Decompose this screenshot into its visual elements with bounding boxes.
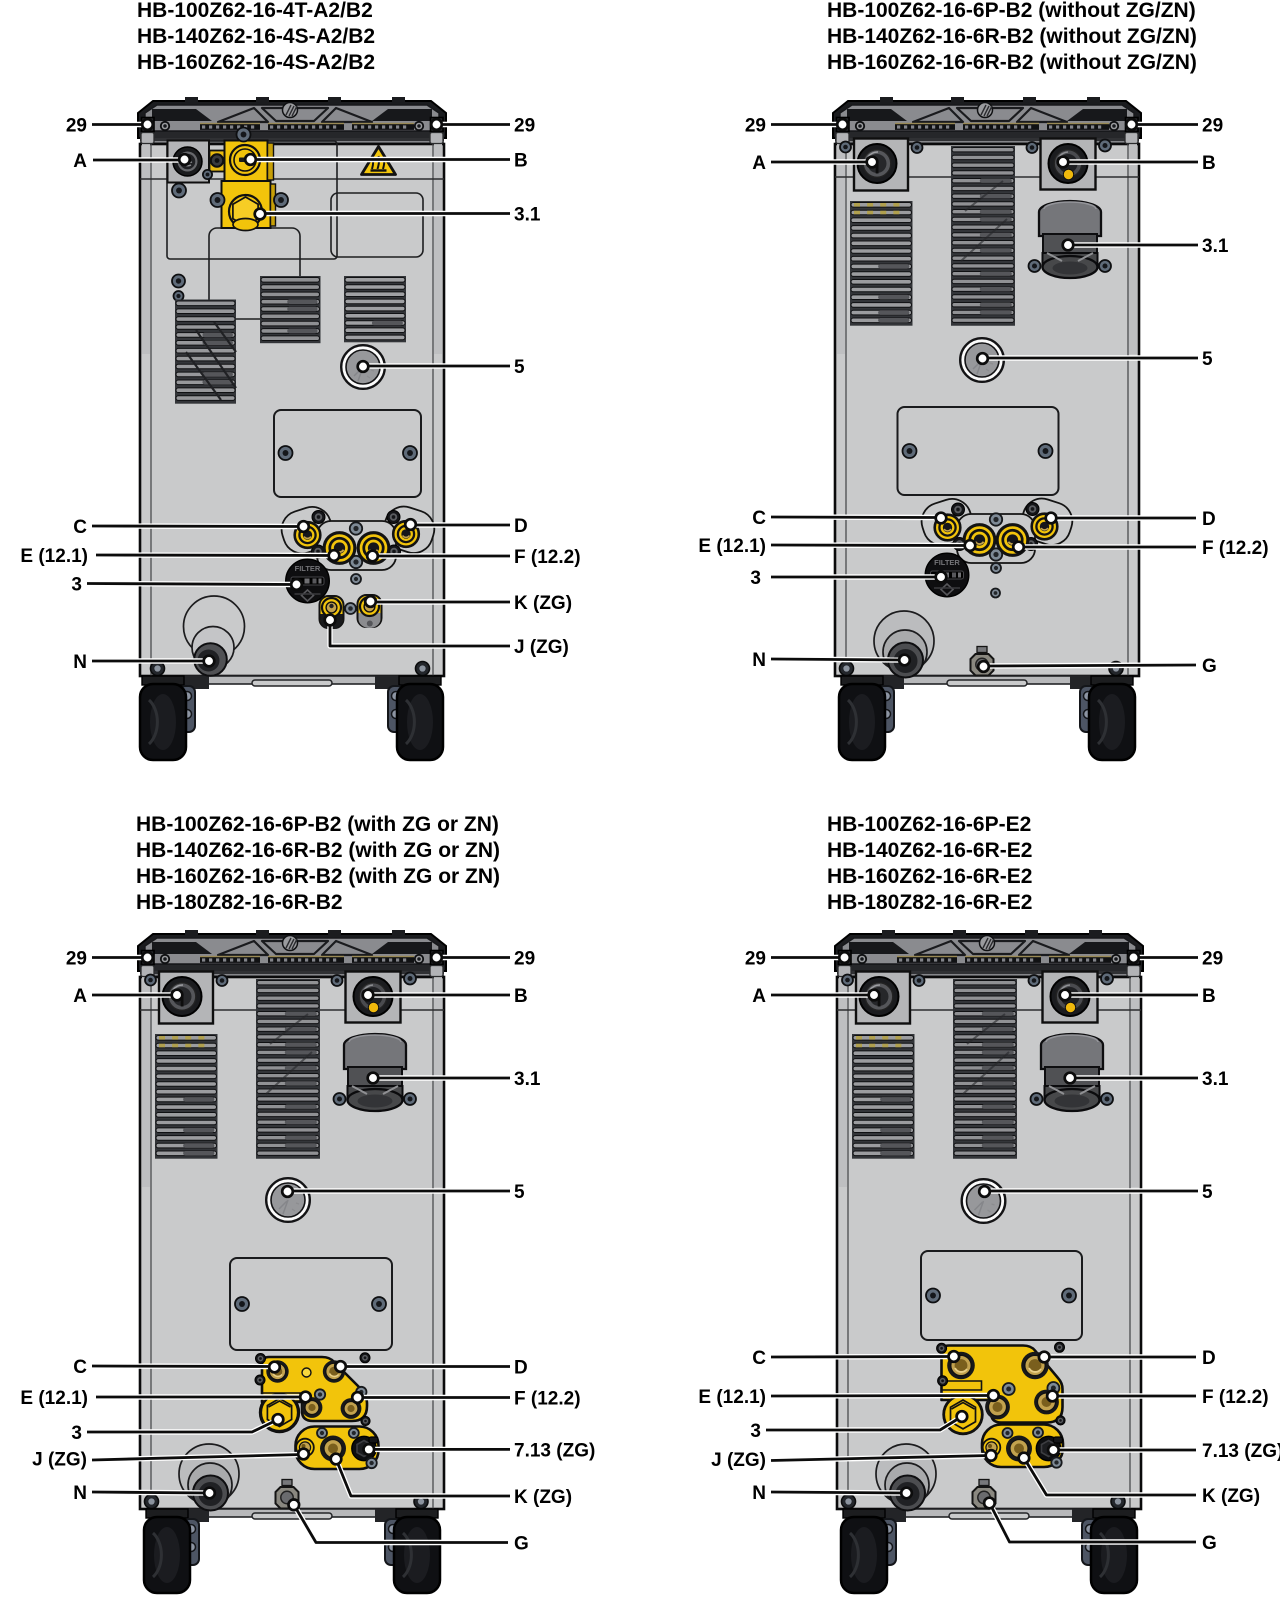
svg-text:29: 29: [514, 116, 535, 137]
svg-text:HB-100Z62-16-6P-B2 (without ZG: HB-100Z62-16-6P-B2 (without ZG/ZN): [827, 0, 1196, 22]
svg-text:29: 29: [66, 949, 87, 970]
svg-text:D: D: [514, 516, 528, 537]
svg-text:A: A: [752, 986, 766, 1007]
svg-text:HB-100Z62-16-6P-E2: HB-100Z62-16-6P-E2: [827, 813, 1031, 836]
svg-text:D: D: [1202, 1348, 1216, 1369]
svg-text:29: 29: [66, 116, 87, 137]
svg-text:G: G: [1202, 1533, 1217, 1554]
svg-text:HB-100Z62-16-6P-B2 (with ZG or: HB-100Z62-16-6P-B2 (with ZG or ZN): [136, 813, 499, 836]
svg-text:F (12.2): F (12.2): [1202, 1387, 1269, 1408]
svg-text:N: N: [73, 652, 87, 673]
svg-text:A: A: [73, 986, 87, 1007]
svg-text:29: 29: [745, 116, 766, 137]
svg-text:F (12.2): F (12.2): [514, 1389, 581, 1410]
svg-text:5: 5: [1202, 1182, 1213, 1203]
svg-text:7.13 (ZG): 7.13 (ZG): [514, 1440, 595, 1461]
svg-text:3: 3: [71, 1423, 82, 1444]
svg-text:A: A: [73, 151, 87, 172]
svg-text:5: 5: [514, 357, 525, 378]
svg-text:J (ZG): J (ZG): [711, 1450, 766, 1471]
svg-text:B: B: [514, 986, 528, 1007]
svg-text:3: 3: [750, 1421, 761, 1442]
svg-text:K (ZG): K (ZG): [514, 1487, 572, 1508]
svg-text:N: N: [73, 1483, 87, 1504]
svg-text:3.1: 3.1: [1202, 236, 1229, 257]
svg-text:3: 3: [71, 575, 82, 596]
svg-text:3.1: 3.1: [514, 1069, 541, 1090]
svg-text:HB-160Z62-16-6R-B2 (without ZG: HB-160Z62-16-6R-B2 (without ZG/ZN): [827, 51, 1197, 74]
svg-text:B: B: [1202, 986, 1216, 1007]
svg-text:G: G: [1202, 656, 1217, 677]
svg-text:K (ZG): K (ZG): [1202, 1486, 1260, 1507]
svg-text:N: N: [752, 1483, 766, 1504]
svg-text:29: 29: [1202, 116, 1223, 137]
svg-text:HB-140Z62-16-6R-E2: HB-140Z62-16-6R-E2: [827, 839, 1032, 862]
svg-text:C: C: [73, 517, 87, 538]
svg-text:J (ZG): J (ZG): [32, 1450, 87, 1471]
svg-text:HB-140Z62-16-6R-B2 (without ZG: HB-140Z62-16-6R-B2 (without ZG/ZN): [827, 25, 1197, 48]
svg-text:D: D: [1202, 509, 1216, 530]
svg-text:B: B: [514, 151, 528, 172]
svg-text:HB-140Z62-16-6R-B2 (with ZG or: HB-140Z62-16-6R-B2 (with ZG or ZN): [136, 839, 500, 862]
svg-text:A: A: [752, 153, 766, 174]
svg-text:5: 5: [1202, 349, 1213, 370]
svg-text:HB-180Z82-16-6R-E2: HB-180Z82-16-6R-E2: [827, 891, 1032, 914]
svg-text:E (12.1): E (12.1): [698, 536, 766, 557]
svg-text:E (12.1): E (12.1): [20, 1388, 88, 1409]
svg-text:29: 29: [514, 949, 535, 970]
svg-text:C: C: [752, 508, 766, 529]
svg-text:5: 5: [514, 1182, 525, 1203]
svg-text:C: C: [752, 1348, 766, 1369]
svg-text:N: N: [752, 650, 766, 671]
svg-text:29: 29: [1202, 949, 1223, 970]
svg-text:G: G: [514, 1534, 529, 1555]
svg-text:7.13 (ZG): 7.13 (ZG): [1202, 1441, 1280, 1462]
svg-text:HB-140Z62-16-4S-A2/B2: HB-140Z62-16-4S-A2/B2: [137, 25, 375, 48]
svg-text:HB-180Z82-16-6R-B2: HB-180Z82-16-6R-B2: [136, 891, 343, 914]
svg-text:B: B: [1202, 153, 1216, 174]
svg-text:F (12.2): F (12.2): [514, 547, 581, 568]
svg-text:E (12.1): E (12.1): [698, 1387, 766, 1408]
svg-text:C: C: [73, 1357, 87, 1378]
svg-text:29: 29: [745, 949, 766, 970]
svg-text:J (ZG): J (ZG): [514, 637, 569, 658]
svg-text:3.1: 3.1: [514, 205, 541, 226]
svg-text:HB-160Z62-16-4S-A2/B2: HB-160Z62-16-4S-A2/B2: [137, 51, 375, 74]
svg-text:HB-160Z62-16-6R-B2 (with ZG or: HB-160Z62-16-6R-B2 (with ZG or ZN): [136, 865, 500, 888]
svg-text:K (ZG): K (ZG): [514, 593, 572, 614]
svg-text:F (12.2): F (12.2): [1202, 538, 1269, 559]
svg-text:FILTER: FILTER: [295, 564, 321, 573]
svg-text:FILTER: FILTER: [934, 558, 960, 567]
svg-text:3: 3: [750, 568, 761, 589]
svg-text:HB-100Z62-16-4T-A2/B2: HB-100Z62-16-4T-A2/B2: [137, 0, 373, 22]
svg-text:3.1: 3.1: [1202, 1069, 1229, 1090]
svg-text:HB-160Z62-16-6R-E2: HB-160Z62-16-6R-E2: [827, 865, 1032, 888]
svg-text:E (12.1): E (12.1): [20, 546, 88, 567]
svg-text:D: D: [514, 1358, 528, 1379]
